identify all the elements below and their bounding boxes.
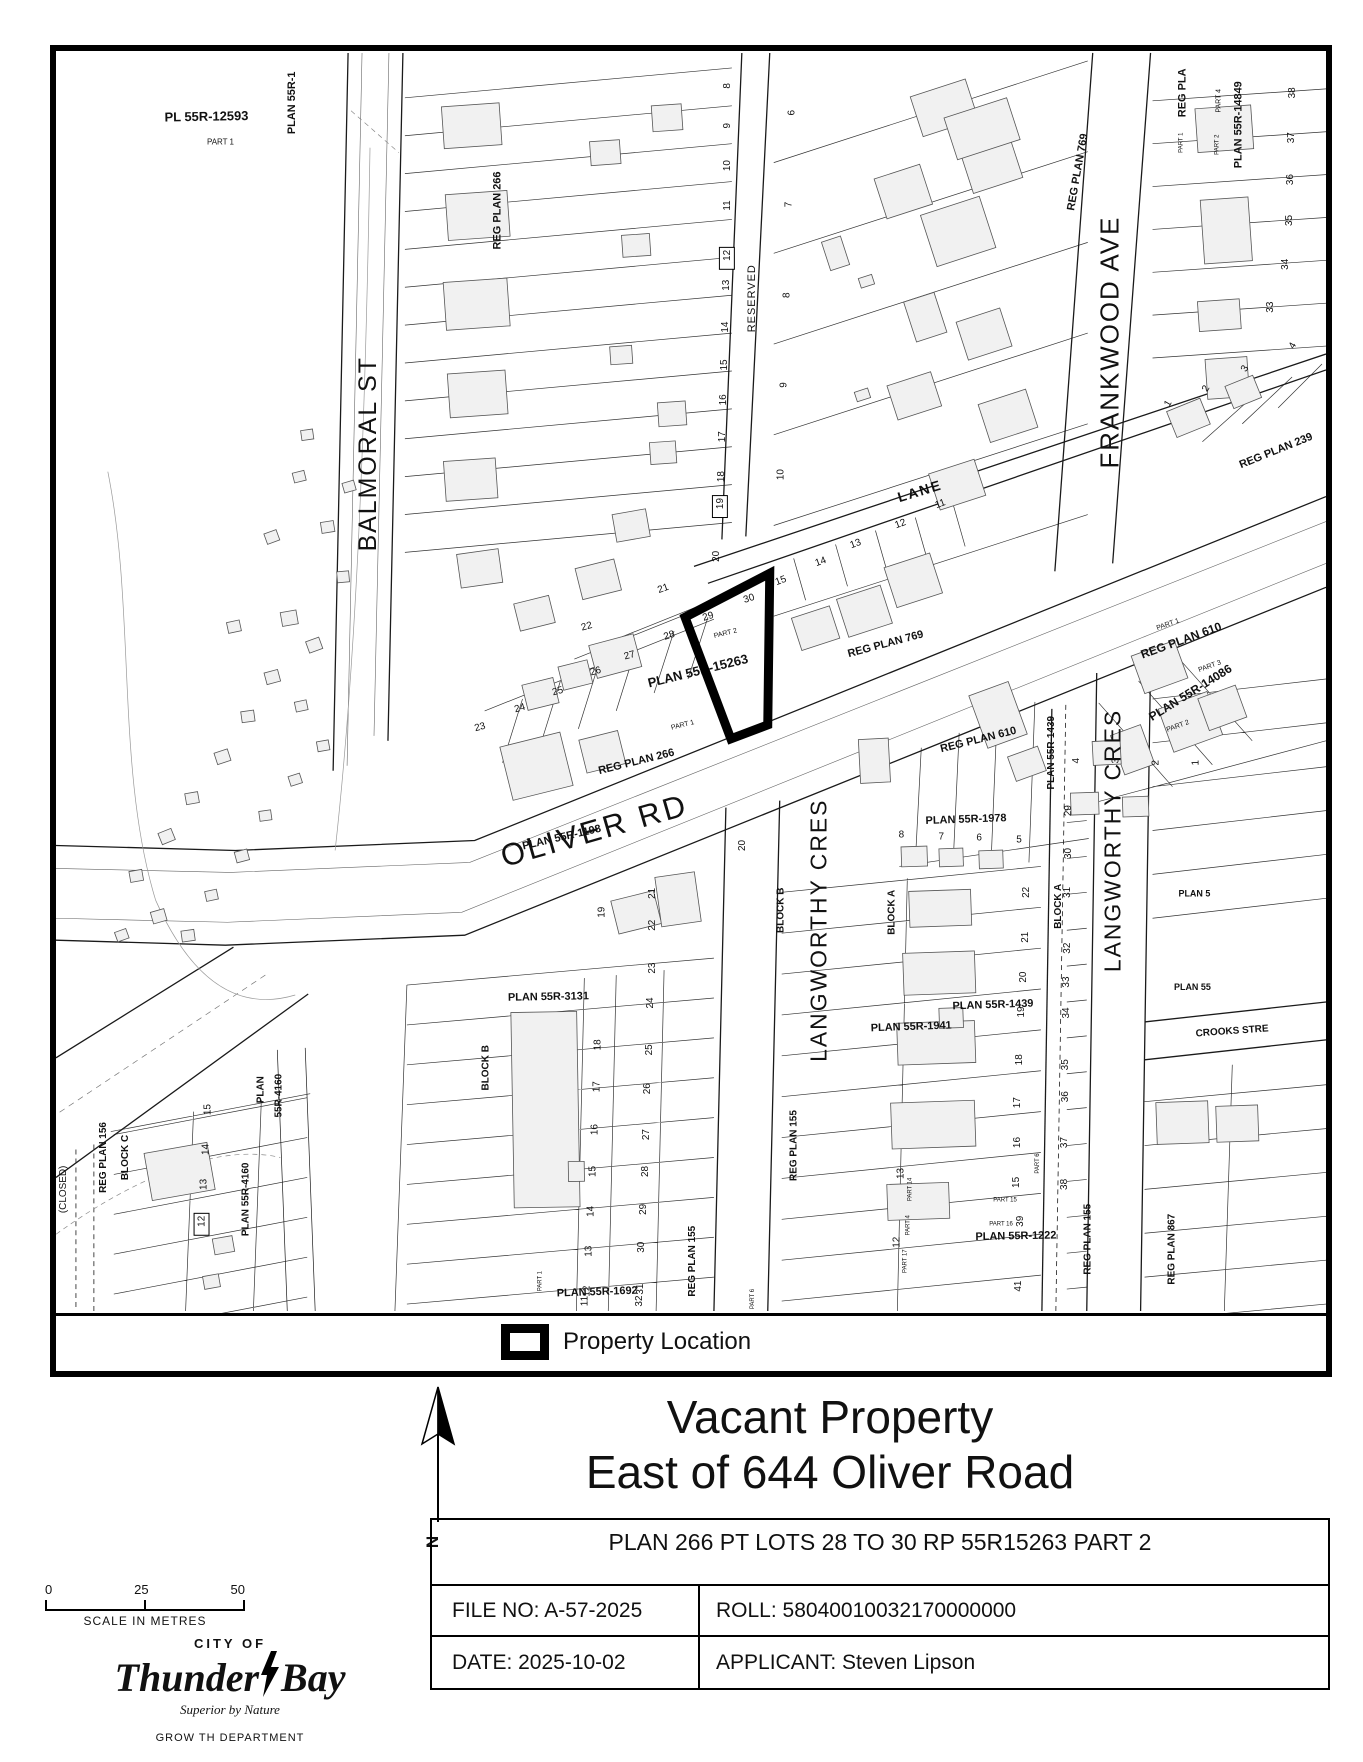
building-footprint: [651, 104, 683, 132]
scale-tick-25: 25: [134, 1582, 148, 1597]
building-footprint: [181, 929, 195, 942]
street-label-frankwood: FRANKWOOD AVE: [1097, 216, 1125, 469]
building-footprint: [956, 308, 1012, 360]
building-footprint: [316, 740, 330, 752]
plan-label: PART 4: [1215, 89, 1222, 113]
lot-number: 20: [711, 550, 722, 562]
lot-number: 19: [596, 906, 607, 918]
lot-number: 7: [938, 832, 944, 843]
logo-name: ThunderBay: [90, 1651, 370, 1700]
lot-number: 9: [779, 382, 790, 388]
map-canvas: BALMORAL STOLIVER RDFRANKWOOD AVELANGWOR…: [56, 51, 1326, 1313]
building-footprint: [649, 441, 676, 465]
lot-number: 11: [579, 1295, 590, 1306]
building-footprint: [205, 889, 219, 901]
lot-number: 14: [814, 555, 829, 569]
building-footprint: [288, 773, 302, 786]
title-line-1: Vacant Property: [360, 1390, 1300, 1445]
map-frame: BALMORAL STOLIVER RDFRANKWOOD AVELANGWOR…: [50, 45, 1332, 1377]
lot-number: 22: [1021, 886, 1032, 898]
lot-number: 14: [201, 1144, 212, 1156]
lot-number: 18: [716, 471, 727, 483]
building-footprint: [337, 571, 350, 583]
building-footprint: [441, 103, 502, 149]
lot-number: 17: [1012, 1097, 1023, 1109]
lot-number: 34: [1061, 1007, 1072, 1019]
lot-number: 15: [587, 1165, 598, 1177]
lot-number: 28: [640, 1165, 651, 1177]
building-footprint: [858, 738, 890, 783]
lot-number: 16: [1012, 1137, 1023, 1149]
lot-number: 13: [849, 537, 864, 551]
lot-number: 12: [581, 1285, 592, 1297]
building-footprint: [858, 274, 874, 288]
building-footprint: [259, 810, 272, 822]
lot-number: 12: [891, 1236, 902, 1248]
applicant-value: APPLICANT: Steven Lipson: [700, 1637, 1328, 1688]
plan-label: PART 17: [902, 1249, 908, 1273]
lot-number: 19: [1016, 1006, 1027, 1018]
building-footprint: [1200, 197, 1252, 264]
lot-number: 17: [717, 431, 728, 443]
building-footprint: [575, 559, 621, 600]
lot-number: 13: [721, 279, 732, 291]
plan-label: PL 55R-12593: [164, 108, 248, 124]
street-label-crooks: CROOKS STRE: [1195, 1023, 1269, 1039]
lot-number: 1: [1162, 398, 1175, 409]
lot-number: 29: [1063, 805, 1074, 817]
scale-line: [45, 1599, 245, 1611]
logo-city-of: CITY OF: [90, 1636, 370, 1651]
building-footprint: [294, 700, 308, 712]
logo-name-bay: Bay: [281, 1655, 345, 1700]
logo-tagline: Superior by Nature: [90, 1702, 370, 1718]
lot-number: 6: [976, 833, 982, 844]
building-footprint: [443, 278, 510, 330]
building-footprint: [590, 140, 622, 166]
scale-tick-50: 50: [231, 1582, 245, 1597]
lot-number: 31: [1062, 886, 1073, 898]
plan-label: PART 2: [1214, 134, 1220, 155]
plan-label: PLAN 5: [1178, 888, 1210, 898]
street-label-balmoral: BALMORAL ST: [354, 356, 382, 551]
lot-number: 8: [722, 83, 733, 89]
plan-label: PART 1: [1156, 617, 1181, 632]
plan-label: PLAN 55R-4160: [240, 1162, 251, 1236]
lot-number: 22: [647, 919, 658, 931]
building-footprint: [158, 828, 175, 844]
lot-number: 33: [1061, 976, 1072, 988]
building-footprint: [447, 370, 508, 418]
lot-number: 30: [636, 1241, 647, 1253]
building-footprint: [884, 553, 942, 608]
plan-label: PART 15: [993, 1197, 1017, 1203]
building-footprint: [214, 749, 231, 765]
file-roll-row: FILE NO: A-57-2025 ROLL: 580400100321700…: [432, 1586, 1328, 1637]
lot-number: 14: [585, 1205, 596, 1217]
building-footprint: [264, 669, 281, 684]
lot-number: 32: [634, 1295, 645, 1307]
lot-number: 26: [642, 1083, 653, 1095]
plan-label: PART 6: [750, 1288, 756, 1309]
lot-number: 41: [1013, 1280, 1024, 1292]
roads-layer: [56, 53, 1326, 1311]
plan-label: PLAN 55R-1692: [557, 1285, 638, 1300]
street-label-closed: (CLOSED): [58, 1166, 69, 1214]
building-footprint: [1122, 796, 1149, 817]
building-footprint: [920, 196, 995, 266]
lot-number: 30: [1063, 847, 1074, 859]
building-footprint: [241, 710, 255, 723]
lot-number: 12: [197, 1215, 208, 1227]
plan-label: PLAN 55R-3131: [508, 990, 589, 1003]
plan-label: REG PLAN 155: [687, 1225, 698, 1296]
building-footprint: [301, 429, 314, 441]
plan-label: REG PLA: [1176, 68, 1188, 117]
plan-label: BLOCK A: [886, 890, 897, 935]
plan-label: BLOCK B: [776, 888, 787, 933]
plan-description: PLAN 266 PT LOTS 28 TO 30 RP 55R15263 PA…: [432, 1520, 1328, 1586]
property-location-swatch-icon: [501, 1324, 549, 1360]
lot-number: 18: [592, 1039, 603, 1051]
lot-number: 21: [647, 887, 658, 899]
building-footprint: [621, 233, 650, 257]
city-logo: CITY OF ThunderBay Superior by Nature GR…: [90, 1636, 370, 1744]
plan-label: PART 4: [905, 1214, 911, 1235]
lot-number: 36: [1285, 174, 1296, 186]
building-footprint: [306, 637, 323, 653]
lot-number: 22: [580, 620, 594, 634]
lot-number: 28: [662, 629, 676, 643]
plan-label: PLAN 55R-1222: [975, 1230, 1056, 1243]
scale-caption: SCALE IN METRES: [45, 1614, 245, 1628]
building-footprint: [901, 846, 928, 867]
logo-name-thunder: Thunder: [115, 1655, 260, 1700]
building-footprint: [1156, 1101, 1209, 1145]
building-footprint: [150, 909, 167, 924]
lot-number: 15: [203, 1104, 214, 1116]
building-footprint: [1197, 299, 1241, 332]
building-footprint: [292, 470, 306, 483]
lot-number: 5: [1016, 834, 1022, 845]
lot-number: 35: [1060, 1059, 1071, 1071]
plan-label: REG PLAN 867: [1166, 1213, 1177, 1284]
lot-number: 20: [1018, 971, 1029, 983]
plan-label: PLAN 55R-1: [286, 71, 298, 134]
building-footprint: [443, 458, 497, 501]
plan-label: REG PLAN 769: [1065, 133, 1090, 212]
building-footprint: [514, 595, 556, 631]
building-footprint: [1216, 1105, 1259, 1142]
lot-number: 14: [720, 321, 731, 333]
scale-bar: 0 25 50 SCALE IN METRES: [45, 1582, 245, 1628]
lot-number: 30: [742, 592, 756, 606]
lot-number: 17: [591, 1081, 602, 1093]
lot-number: 29: [638, 1203, 649, 1215]
street-label-langworthy-w: LANGWORTHY CRES: [806, 799, 832, 1062]
building-footprint: [903, 951, 976, 995]
plan-label: BLOCK C: [120, 1135, 131, 1180]
lot-number: 4: [1287, 340, 1300, 351]
plan-label: REG PLAN 155: [1083, 1203, 1094, 1274]
lot-number: 21: [656, 582, 671, 596]
building-footprint: [264, 530, 280, 545]
lot-number: 12: [893, 517, 908, 531]
building-footprint: [212, 1236, 234, 1255]
building-footprint: [979, 850, 1004, 869]
lot-number: 6: [787, 110, 798, 116]
title-block: PLAN 266 PT LOTS 28 TO 30 RP 55R15263 PA…: [430, 1518, 1330, 1690]
plan-label: PART 1: [1178, 132, 1184, 153]
building-footprint: [203, 1274, 221, 1290]
lot-number: 35: [1284, 214, 1295, 226]
plan-label: PART 2: [713, 627, 738, 640]
lot-number: 38: [1287, 87, 1298, 99]
street-label-reserved: RESERVED: [746, 264, 758, 332]
lot-number: 8: [899, 830, 905, 841]
building-footprint: [500, 732, 573, 800]
building-footprint: [558, 660, 593, 690]
plan-label: REG PLAN 266: [492, 172, 504, 250]
building-footprint: [791, 606, 839, 651]
building-footprint: [1008, 746, 1047, 781]
scale-tick-0: 0: [45, 1582, 52, 1597]
lot-number: 10: [776, 469, 787, 481]
building-footprint: [854, 388, 870, 402]
building-footprint: [610, 345, 633, 364]
building-footprint: [568, 1161, 584, 1181]
lot-number: 36: [1060, 1091, 1071, 1103]
building-footprint: [114, 928, 129, 941]
building-footprint: [887, 1182, 950, 1220]
building-footprint: [909, 889, 972, 927]
legend-label: Property Location: [563, 1328, 751, 1356]
lot-number: 15: [774, 574, 789, 588]
plan-label: REG PLAN 155: [789, 1110, 800, 1181]
lot-number: 18: [1014, 1054, 1025, 1066]
lightning-bolt-icon: [259, 1651, 281, 1697]
building-footprint: [657, 401, 687, 427]
plan-label: PART 14: [907, 1177, 913, 1201]
lot-number: 11: [722, 200, 733, 211]
lot-number: 34: [1280, 258, 1291, 270]
building-footprint: [226, 620, 241, 633]
plan-label: PART 1: [670, 719, 695, 732]
building-footprint: [1070, 792, 1099, 815]
lot-number: 13: [895, 1167, 906, 1179]
building-footprint: [874, 164, 932, 219]
plan-label: PART 16: [989, 1221, 1013, 1227]
lot-number: 24: [513, 702, 527, 716]
building-footprint: [612, 509, 650, 542]
lot-number: 24: [645, 997, 656, 1009]
lot-number: 37: [1059, 1137, 1070, 1149]
lot-number: 7: [784, 201, 795, 207]
plan-label: REG PLAN 156: [98, 1122, 109, 1193]
lot-number: 27: [641, 1129, 652, 1141]
building-footprint: [887, 372, 942, 420]
plan-label: PLAN 55R-1439: [1046, 716, 1057, 790]
legend: Property Location: [56, 1313, 1326, 1368]
plan-label: BLOCK B: [481, 1045, 492, 1090]
plan-label: 55R-4160: [273, 1073, 284, 1117]
lot-number: 23: [473, 721, 487, 735]
lot-number: 4: [1071, 758, 1082, 764]
building-footprint: [320, 521, 335, 534]
logo-department: GROW TH DEPARTMENT: [90, 1732, 370, 1744]
plan-label: REG PLAN 610: [1139, 619, 1224, 661]
file-number: FILE NO: A-57-2025: [432, 1586, 700, 1635]
street-label-langworthy-e: LANGWORTHY CRES: [1100, 709, 1126, 972]
title-line-2: East of 644 Oliver Road: [360, 1445, 1300, 1500]
building-footprint: [978, 389, 1038, 442]
building-footprint: [891, 1100, 976, 1149]
building-footprint: [185, 792, 200, 805]
lot-number: 13: [199, 1178, 210, 1190]
lot-number: 9: [722, 123, 733, 129]
plan-label: PLAN 55: [1174, 982, 1211, 992]
lot-number: 12: [722, 249, 733, 261]
lot-number: 38: [1059, 1178, 1070, 1190]
lot-number: 15: [719, 359, 730, 371]
lot-number: 23: [647, 962, 658, 974]
labels-layer: BALMORAL STOLIVER RDFRANKWOOD AVELANGWOR…: [58, 68, 1314, 1309]
building-footprint: [129, 869, 144, 882]
lot-number: 32: [1062, 942, 1073, 954]
plan-label: PLAN 55R-1978: [925, 812, 1006, 827]
plan-label: PART 1: [207, 138, 235, 147]
lot-number: 25: [644, 1044, 655, 1056]
lot-number: 8: [782, 292, 793, 298]
lot-number: 21: [1020, 931, 1031, 943]
lot-number: 15: [1011, 1176, 1022, 1188]
plan-label: PART 6: [1035, 1153, 1041, 1174]
lot-number: 16: [589, 1124, 600, 1136]
lot-number: 37: [1286, 132, 1297, 144]
building-footprint: [655, 872, 701, 927]
date-applicant-row: DATE: 2025-10-02 APPLICANT: Steven Lipso…: [432, 1637, 1328, 1688]
lot-number: 20: [737, 839, 748, 851]
building-footprint: [904, 292, 947, 342]
plan-label: PART 1: [537, 1270, 543, 1291]
plan-label: REG PLAN 239: [1238, 431, 1315, 471]
lot-number: 10: [722, 160, 733, 172]
lot-number: 39: [1015, 1215, 1026, 1227]
building-footprint: [280, 610, 298, 627]
lot-number: 13: [583, 1245, 594, 1257]
lot-number: 3: [1111, 758, 1122, 764]
lot-number: 2: [1151, 760, 1162, 766]
lot-number: 19: [715, 498, 726, 510]
roll-number: ROLL: 58040010032170000000: [700, 1586, 1328, 1635]
lot-number: 31: [635, 1283, 646, 1295]
page: BALMORAL STOLIVER RDFRANKWOOD AVELANGWOR…: [0, 0, 1363, 1762]
lot-number: 33: [1265, 301, 1276, 313]
date-value: DATE: 2025-10-02: [432, 1637, 700, 1688]
scale-tick-labels: 0 25 50: [45, 1582, 245, 1597]
plan-label: PLAN 55R-14849: [1232, 81, 1244, 168]
plan-label: PLAN: [255, 1076, 266, 1103]
lot-number: 1: [1190, 760, 1201, 766]
map-title: Vacant Property East of 644 Oliver Road: [360, 1390, 1300, 1500]
lot-number: 16: [718, 394, 729, 406]
building-footprint: [939, 848, 964, 867]
building-footprint: [821, 236, 849, 271]
building-footprint: [457, 549, 503, 588]
building-footprint: [1195, 105, 1254, 153]
